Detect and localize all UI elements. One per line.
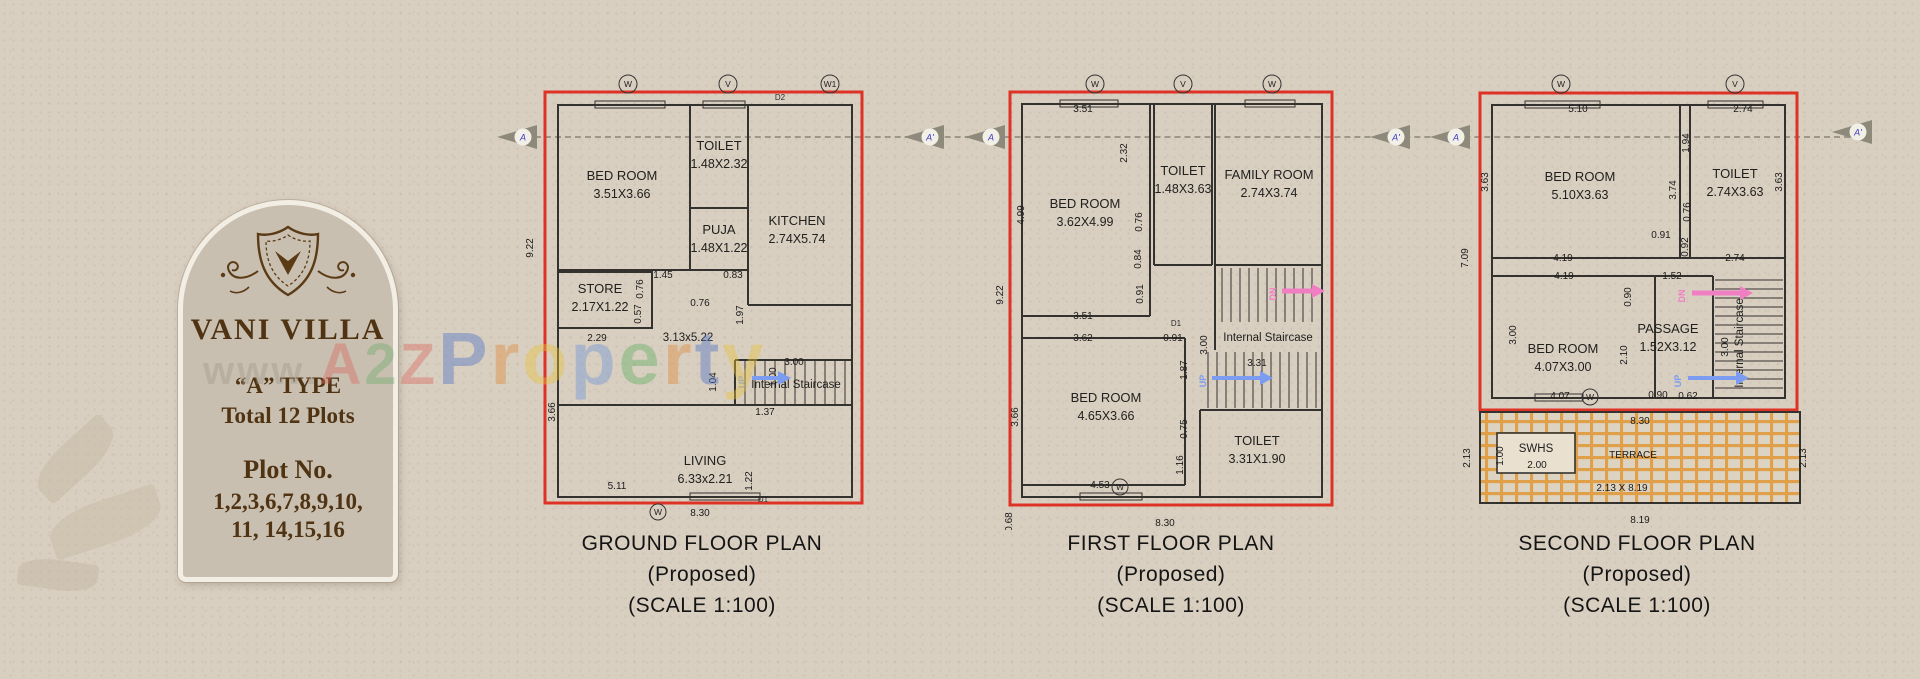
ground-floor-caption: GROUND FLOOR PLAN (Proposed) (SCALE 1:10… — [552, 528, 852, 621]
room-name: LIVING — [684, 453, 727, 468]
plot-numbers-line2: 11, 14,15,16 — [231, 515, 345, 545]
room-name: BED ROOM — [587, 168, 658, 183]
dimension-label: 3.66 — [547, 402, 558, 422]
dn-arrow-label: DN — [1677, 290, 1687, 303]
dimension-label: 0.76 — [1682, 202, 1693, 222]
caption-line: FIRST FLOOR PLAN — [1021, 528, 1321, 559]
wall-opening-marker-label: W — [1557, 79, 1565, 89]
dimension-label: 0.91 — [1163, 333, 1183, 344]
wall-opening-marker-label: W — [654, 507, 662, 517]
caption-line: SECOND FLOOR PLAN — [1487, 528, 1787, 559]
dimension-label: 1.52 — [1662, 271, 1682, 282]
dimension-label: 0.91 — [1651, 230, 1671, 241]
dimension-label: 0.75 — [1179, 419, 1190, 439]
svg-text:A': A' — [1391, 133, 1400, 143]
wall-opening-marker-label: V — [725, 79, 731, 89]
second-floor-caption: SECOND FLOOR PLAN (Proposed) (SCALE 1:10… — [1487, 528, 1787, 621]
dimension-label: 3.62 — [1073, 333, 1093, 344]
room-name: BED ROOM — [1528, 341, 1599, 356]
door-label: D1 — [758, 495, 769, 504]
villa-title: VANI VILLA — [191, 313, 386, 347]
wall-opening-marker-label: W1 — [824, 79, 837, 89]
dimension-label: 3.00 — [1508, 325, 1519, 345]
dimension-label: 1.45 — [653, 270, 673, 281]
wall-opening-marker-label: W — [624, 79, 632, 89]
wall-opening-marker-label: W — [1268, 79, 1276, 89]
svg-text:A': A' — [925, 133, 934, 143]
room-dimensions: 3.31X1.90 — [1229, 452, 1286, 466]
plot-numbers-line1: 1,2,3,6,7,8,9,10, — [213, 487, 363, 517]
dimension-label: 0.92 — [1680, 237, 1691, 257]
dimension-label: 5.10 — [1568, 104, 1588, 115]
door-label: D1 — [1171, 319, 1182, 328]
dimension-label: 2.13 X 8.19 — [1596, 483, 1648, 494]
area-label: Internal Staircase — [1223, 332, 1313, 344]
room-name: PASSAGE — [1637, 321, 1699, 336]
dimension-label: 3.00 — [1199, 335, 1210, 355]
section-marker-A-prime: A' — [904, 123, 944, 151]
dimension-label: 4.07 — [1550, 391, 1570, 402]
room-dimensions: 3.51X3.66 — [594, 187, 651, 201]
caption-line: (Proposed) — [1487, 559, 1787, 590]
dimension-label: 0.76 — [690, 298, 710, 309]
section-marker-A: A — [965, 123, 1005, 151]
area-label: Internal Staircase — [751, 379, 841, 391]
caption-line: (Proposed) — [1021, 559, 1321, 590]
dimension-label: 2.00 — [1527, 460, 1547, 471]
wall-opening-marker-label: V — [1180, 79, 1186, 89]
dimension-label: 3.31 — [1247, 358, 1267, 369]
svg-text:A': A' — [1853, 128, 1862, 138]
room-name: STORE — [578, 281, 623, 296]
section-marker-icon: A' — [1370, 123, 1410, 151]
dimension-label: 3.51 — [1073, 311, 1093, 322]
dimension-label: 0.68 — [1004, 512, 1015, 530]
dimension-label: 8.19 — [1630, 515, 1650, 526]
dimension-label: 7.09 — [1460, 248, 1471, 268]
total-plots: Total 12 Plots — [221, 403, 354, 429]
room-dimensions: 1.52X3.12 — [1640, 340, 1697, 354]
dimension-label: 3.00 — [784, 357, 804, 368]
section-marker-icon: A — [965, 123, 1005, 151]
room-name: KITCHEN — [768, 213, 825, 228]
caption-line: (SCALE 1:100) — [1021, 590, 1321, 621]
crest-check-mark — [275, 251, 301, 275]
brand-card: VANI VILLA “A” TYPE Total 12 Plots Plot … — [178, 200, 398, 582]
dimension-label: 3.74 — [1668, 180, 1679, 200]
room-dimensions: 3.62X4.99 — [1057, 215, 1114, 229]
caption-line: (SCALE 1:100) — [552, 590, 852, 621]
room-dimensions: 1.48X1.22 — [691, 241, 748, 255]
dimension-label: 1.94 — [1681, 133, 1692, 153]
section-marker-A: A — [1430, 123, 1470, 151]
room-dimensions: 1.48X2.32 — [691, 157, 748, 171]
wall-opening-marker-label: V — [1732, 79, 1738, 89]
plot-number-label: Plot No. — [243, 455, 333, 485]
dimension-label: 2.32 — [1119, 143, 1130, 163]
dimension-label: 5.11 — [608, 481, 627, 492]
room-dimensions: 2.74X3.74 — [1241, 186, 1298, 200]
dimension-label: 4.53 — [1090, 480, 1110, 491]
dimension-label: 1.37 — [755, 407, 775, 418]
svg-text:A: A — [1452, 133, 1459, 143]
dimension-label: 4.99 — [1016, 205, 1027, 225]
dimension-label: 4.19 — [1553, 253, 1573, 264]
wall-opening-marker-label: W — [1091, 79, 1099, 89]
room-dimensions: 6.33x2.21 — [678, 472, 733, 486]
dimension-label: 0.84 — [1133, 249, 1144, 269]
svg-text:A: A — [519, 133, 526, 143]
room-dimensions: 2.74X5.74 — [769, 232, 826, 246]
dimension-label: 9.22 — [995, 285, 1006, 305]
dimension-label: 0.62 — [1678, 391, 1698, 402]
room-dimensions: 4.07X3.00 — [1535, 360, 1592, 374]
dimension-label: 2.13 — [1462, 448, 1473, 468]
dimension-label: 2.74 — [1733, 104, 1753, 115]
watermark-letter: Z — [400, 331, 435, 398]
room-dimensions: 2.74X3.63 — [1707, 185, 1764, 199]
room-dimensions: 4.65X3.66 — [1078, 409, 1135, 423]
dn-arrow-label: DN — [1268, 288, 1278, 301]
room-name: BED ROOM — [1050, 196, 1121, 211]
dimension-label: 3.00 — [1720, 337, 1731, 357]
leaf-decoration — [16, 555, 99, 596]
section-marker-A-prime: A' — [1832, 118, 1872, 146]
dimension-label: 3.63 — [1480, 172, 1491, 192]
caption-line: GROUND FLOOR PLAN — [552, 528, 852, 559]
dimension-label: 1.97 — [735, 305, 746, 325]
section-marker-icon: A' — [904, 123, 944, 151]
section-marker-icon: A — [1430, 123, 1470, 151]
dimension-label: 0.76 — [635, 279, 646, 299]
dimension-label: 0.90 — [1648, 390, 1668, 401]
area-label: TERRACE — [1609, 450, 1657, 461]
room-name: PUJA — [702, 222, 736, 237]
dimension-label: 2.10 — [1619, 345, 1630, 365]
up-arrow-label: UP — [1198, 375, 1208, 388]
dimension-label: 0.90 — [1623, 287, 1634, 307]
leaf-decoration — [27, 413, 123, 505]
plan-red-border — [1010, 92, 1332, 505]
room-name: TOILET — [1234, 433, 1279, 448]
dimension-label: 3.51 — [1073, 104, 1093, 115]
dimension-label: 8.30 — [1630, 416, 1650, 427]
area-label: SWHS — [1519, 443, 1554, 455]
dimension-label: 1.16 — [1175, 455, 1186, 475]
villa-type: “A” TYPE — [235, 373, 341, 399]
dimension-label: 0.76 — [1134, 212, 1145, 232]
wall-opening-marker-label: W — [1116, 482, 1124, 492]
svg-text:A: A — [987, 133, 994, 143]
section-marker-A-prime: A' — [1370, 123, 1410, 151]
room-name: TOILET — [696, 138, 741, 153]
room-name: BED ROOM — [1545, 169, 1616, 184]
caption-line: (SCALE 1:100) — [1487, 590, 1787, 621]
caption-line: (Proposed) — [552, 559, 852, 590]
watermark-letter: P — [438, 316, 487, 401]
second-floor-plan: BED ROOM5.10X3.63TOILET2.74X3.63BED ROOM… — [1440, 60, 1840, 540]
brochure-canvas: VANI VILLA “A” TYPE Total 12 Plots Plot … — [0, 0, 1920, 679]
section-marker-icon: A' — [1832, 118, 1872, 146]
dimension-label: 0.57 — [633, 304, 644, 324]
room-name: FAMILY ROOM — [1224, 167, 1313, 182]
dimension-label: 1.87 — [1179, 360, 1190, 380]
dimension-label: 9.22 — [525, 238, 536, 258]
dn-arrowhead-icon — [1312, 284, 1325, 298]
dimension-label: 3.63 — [1774, 172, 1785, 192]
section-marker-icon: A — [497, 123, 537, 151]
dimension-label: 4.19 — [1554, 271, 1574, 282]
dimension-label: 2.74 — [1725, 253, 1745, 264]
dimension-label: 2.13 — [1798, 448, 1809, 468]
up-arrow-label: UP — [737, 376, 747, 389]
section-marker-A: A — [497, 123, 537, 151]
room-name: BED ROOM — [1071, 390, 1142, 405]
dimension-label: 8.30 — [690, 508, 710, 519]
first-floor-plan: BED ROOM3.62X4.99TOILET1.48X3.63FAMILY R… — [960, 60, 1350, 530]
room-dimensions: 5.10X3.63 — [1552, 188, 1609, 202]
dimension-label: 0.83 — [723, 270, 743, 281]
dimension-label: 1.22 — [744, 471, 755, 491]
room-name: TOILET — [1712, 166, 1757, 181]
dimension-label: 1.00 — [1495, 446, 1506, 466]
first-floor-caption: FIRST FLOOR PLAN (Proposed) (SCALE 1:100… — [1021, 528, 1321, 621]
up-arrow-label: UP — [1673, 375, 1683, 388]
dimension-label: 1.04 — [708, 372, 719, 392]
dimension-label: 0.91 — [1135, 284, 1146, 304]
area-label: 3.13x5.22 — [663, 332, 714, 344]
wall-opening-marker-label: W — [1586, 392, 1594, 402]
crest-logo-icon — [213, 219, 363, 311]
dimension-label: 3.66 — [1010, 407, 1021, 427]
room-dimensions: 1.48X3.63 — [1155, 182, 1212, 196]
ground-floor-plan: BED ROOM3.51X3.66TOILET1.48X2.32PUJA1.48… — [500, 60, 870, 530]
room-name: TOILET — [1160, 163, 1205, 178]
plan-red-border — [1480, 93, 1797, 410]
room-dimensions: 2.17X1.22 — [572, 300, 629, 314]
dimension-label: 2.29 — [587, 333, 607, 344]
door-label: D2 — [775, 93, 786, 102]
